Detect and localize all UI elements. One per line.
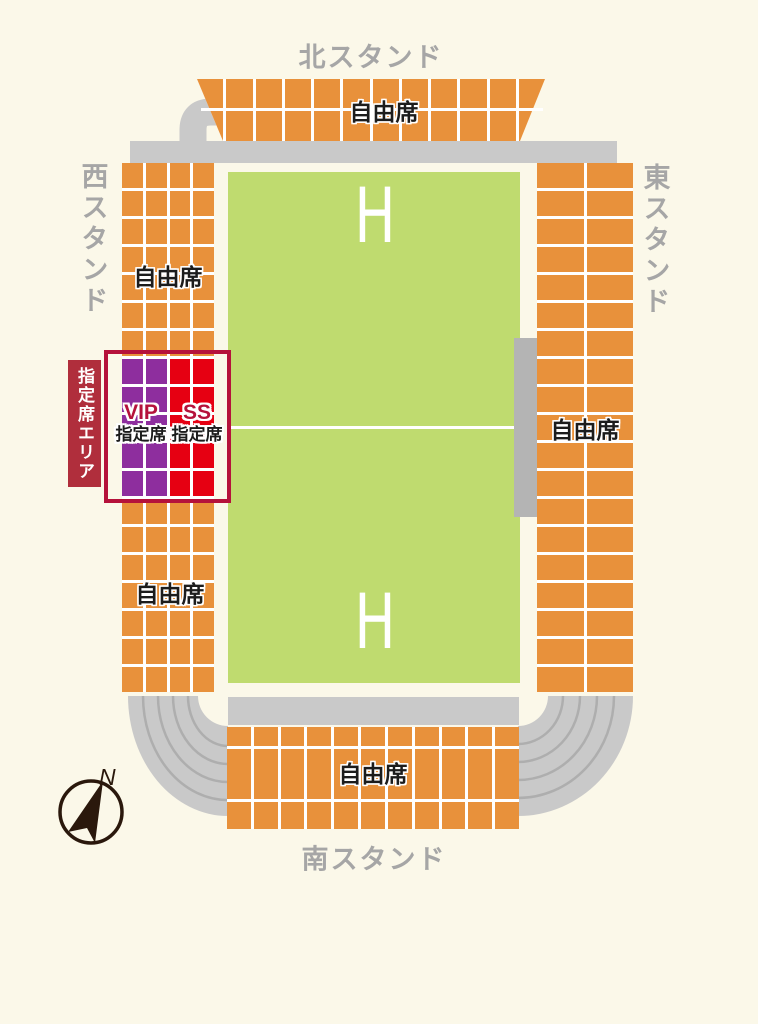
seat-cell: [468, 802, 492, 829]
seat-cell: [468, 749, 492, 799]
seat-cell: [415, 749, 439, 799]
compass-n-label: N: [99, 764, 116, 790]
seat-cell: [256, 111, 282, 141]
seat-cell: [468, 727, 492, 746]
seat-cell: [122, 527, 143, 552]
seat-cell: [537, 275, 584, 300]
seat-cell: [193, 611, 214, 636]
ss-type-text: 指定席: [172, 424, 223, 445]
seat-cell: [254, 749, 278, 799]
ss-code-text: SS: [172, 402, 223, 424]
ss-zone-label: SS 指定席: [172, 402, 223, 445]
seat-cell: [193, 191, 214, 216]
seat-cell: [122, 611, 143, 636]
seat-cell: [537, 583, 584, 608]
seat-cell: [587, 163, 634, 188]
seat-cell: [281, 727, 305, 746]
free-seat-label-west-upper: 自由席: [134, 258, 203, 292]
goal-mark-north: H: [354, 178, 395, 254]
north-stand-title: 北スタンド: [299, 36, 444, 75]
seat-cell: [285, 79, 311, 108]
seat-cell: [334, 802, 358, 829]
seat-cell: [281, 749, 305, 799]
seat-cell: [495, 749, 519, 799]
seat-cell: [314, 111, 340, 141]
seat-cell: [122, 303, 143, 328]
seat-cell: [122, 191, 143, 216]
seat-cell: [442, 727, 466, 746]
seat-cell: [587, 555, 634, 580]
seat-cell: [537, 555, 584, 580]
goal-mark-south: H: [354, 584, 395, 660]
seat-cell: [460, 79, 486, 108]
seat-cell: [587, 219, 634, 244]
seat-cell: [193, 527, 214, 552]
halfway-line: [228, 426, 520, 429]
seat-cell: [537, 219, 584, 244]
seat-cell: [537, 527, 584, 552]
seat-cell: [442, 749, 466, 799]
seat-cell: [146, 191, 167, 216]
seat-cell: [587, 499, 634, 524]
compass: N: [55, 763, 135, 853]
seat-cell: [537, 303, 584, 328]
seat-cell: [146, 667, 167, 692]
seat-cell: [122, 219, 143, 244]
compass-needle-icon: [68, 781, 103, 843]
seat-cell: [537, 331, 584, 356]
stand-divider-nub: [531, 108, 543, 111]
seat-cell: [495, 802, 519, 829]
seat-cell: [431, 111, 457, 141]
seat-cell: [170, 191, 191, 216]
seat-cell: [146, 303, 167, 328]
seat-cell: [537, 191, 584, 216]
seat-cell: [226, 111, 252, 141]
seat-cell: [587, 639, 634, 664]
seat-cell: [537, 471, 584, 496]
seat-cell: [495, 727, 519, 746]
south-stand-title: 南スタンド: [302, 838, 447, 877]
seat-cell: [122, 639, 143, 664]
free-seat-label-east: 自由席: [551, 411, 620, 445]
seat-cell: [537, 359, 584, 384]
seat-cell: [587, 359, 634, 384]
seat-cell: [587, 667, 634, 692]
seat-cell: [256, 79, 282, 108]
seat-cell: [537, 667, 584, 692]
free-seat-label-south: 自由席: [339, 755, 408, 789]
seat-cell: [193, 219, 214, 244]
seat-cell: [193, 303, 214, 328]
seat-cell: [285, 111, 311, 141]
seat-cell: [537, 499, 584, 524]
seat-cell: [587, 527, 634, 552]
seat-cell: [193, 667, 214, 692]
seat-cell: [460, 111, 486, 141]
seat-cell: [587, 443, 634, 468]
seat-cell: [146, 219, 167, 244]
seat-cell: [587, 247, 634, 272]
seat-cell: [587, 583, 634, 608]
seat-cell: [587, 303, 634, 328]
reserved-area-badge: 指定席エリア: [68, 360, 101, 487]
seat-cell: [170, 303, 191, 328]
vip-code-text: VIP: [116, 402, 167, 424]
seat-cell: [170, 219, 191, 244]
seat-cell: [537, 443, 584, 468]
track-south-straight: [228, 697, 519, 725]
seat-cell: [170, 611, 191, 636]
seat-cell: [227, 802, 251, 829]
seat-cell: [122, 667, 143, 692]
seat-cell: [146, 639, 167, 664]
seat-cell: [537, 163, 584, 188]
seat-cell: [490, 79, 516, 108]
seat-cell: [307, 749, 331, 799]
track-curve-southeast: [518, 696, 633, 816]
vip-type-text: 指定席: [116, 424, 167, 445]
seat-cell: [415, 727, 439, 746]
seat-cell: [537, 639, 584, 664]
east-stand-title: 東スタンド: [636, 163, 675, 318]
seat-cell: [587, 191, 634, 216]
seat-cell: [146, 163, 167, 188]
seat-cell: [170, 639, 191, 664]
seat-cell: [537, 611, 584, 636]
seat-cell: [170, 163, 191, 188]
seat-cell: [227, 749, 251, 799]
seat-cell: [314, 79, 340, 108]
field-side-strip: [514, 338, 537, 517]
seat-cell: [587, 471, 634, 496]
seat-cell: [170, 527, 191, 552]
seat-cell: [537, 247, 584, 272]
seat-cell: [587, 275, 634, 300]
free-seat-label-north: 自由席: [350, 93, 419, 127]
seat-cell: [122, 163, 143, 188]
seat-cell: [226, 79, 252, 108]
seat-cell: [146, 527, 167, 552]
reserved-area-badge-text: 指定席エリア: [72, 367, 97, 481]
seat-cell: [334, 727, 358, 746]
seat-cell: [415, 802, 439, 829]
seat-cell: [388, 727, 412, 746]
seat-cell: [490, 111, 516, 141]
seat-cell: [307, 802, 331, 829]
seat-cell: [146, 611, 167, 636]
seat-cell: [431, 79, 457, 108]
stand-divider-nub: [201, 108, 213, 111]
seat-cell: [193, 163, 214, 188]
seat-cell: [587, 611, 634, 636]
free-seat-label-west-lower: 自由席: [136, 575, 205, 609]
seat-cell: [170, 667, 191, 692]
seat-cell: [388, 802, 412, 829]
seat-cell: [227, 727, 251, 746]
seat-cell: [442, 802, 466, 829]
seat-cell: [361, 727, 385, 746]
seat-cell: [281, 802, 305, 829]
seat-cell: [537, 387, 584, 412]
west-stand-title: 西スタンド: [74, 162, 113, 317]
seat-cell: [587, 331, 634, 356]
seat-cell: [307, 727, 331, 746]
seat-cell: [254, 727, 278, 746]
seat-cell: [587, 387, 634, 412]
seat-cell: [254, 802, 278, 829]
seat-cell: [193, 639, 214, 664]
seat-cell: [361, 802, 385, 829]
vip-zone-label: VIP 指定席: [116, 402, 167, 445]
